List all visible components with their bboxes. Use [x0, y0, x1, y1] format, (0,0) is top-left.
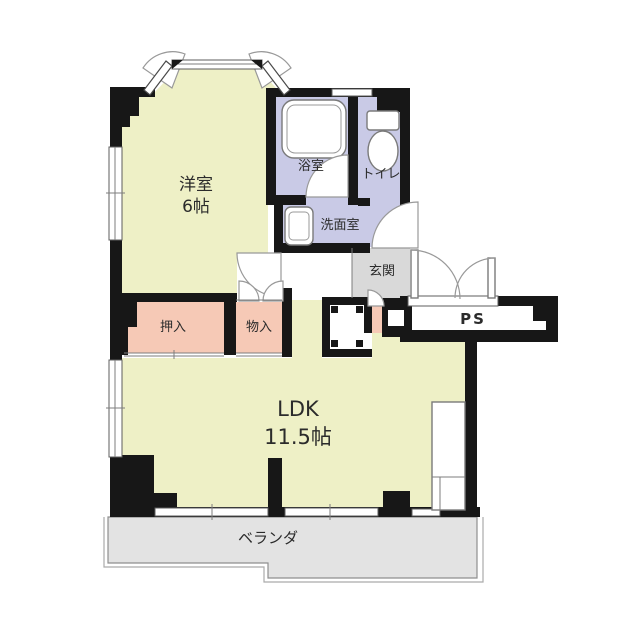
- bathtub: [282, 100, 346, 158]
- kitchen-counter: [432, 402, 465, 510]
- entrance-door-leaf-left: [411, 250, 418, 298]
- entrance-step-strip: [372, 305, 382, 333]
- pipe-space-label: PS: [460, 310, 486, 328]
- bath-label: 浴室: [298, 158, 324, 174]
- western-room-size: 6帖: [182, 197, 210, 217]
- toilet-fixture: [367, 111, 399, 171]
- western-room-label: 洋室: [179, 175, 213, 195]
- entrance-door-leaf-right: [488, 258, 495, 298]
- entrance-threshold: [408, 296, 498, 306]
- veranda-label: ベランダ: [238, 529, 298, 547]
- shoe-cabinet: [388, 310, 404, 326]
- ldk-label: LDK: [277, 397, 320, 421]
- toilet-window: [332, 89, 372, 96]
- ldk-size: 11.5帖: [264, 425, 332, 449]
- ldk-south-window-2: [285, 508, 378, 516]
- closet-label: 押入: [160, 320, 186, 335]
- veranda-area: [104, 517, 483, 582]
- storage-label: 物入: [246, 320, 272, 335]
- floorplan-canvas: 洋室 6帖 浴室 トイレ 洗面室 玄関 PS 押入 物入 LDK 11.5帖 ベ…: [0, 0, 640, 640]
- washbasin: [285, 207, 313, 245]
- toilet-label: トイレ: [361, 167, 400, 182]
- entrance-label: 玄関: [369, 264, 395, 279]
- floorplan-drawing: 洋室 6帖 浴室 トイレ 洗面室 玄関 PS 押入 物入 LDK 11.5帖 ベ…: [0, 0, 640, 640]
- washroom-label: 洗面室: [320, 217, 359, 233]
